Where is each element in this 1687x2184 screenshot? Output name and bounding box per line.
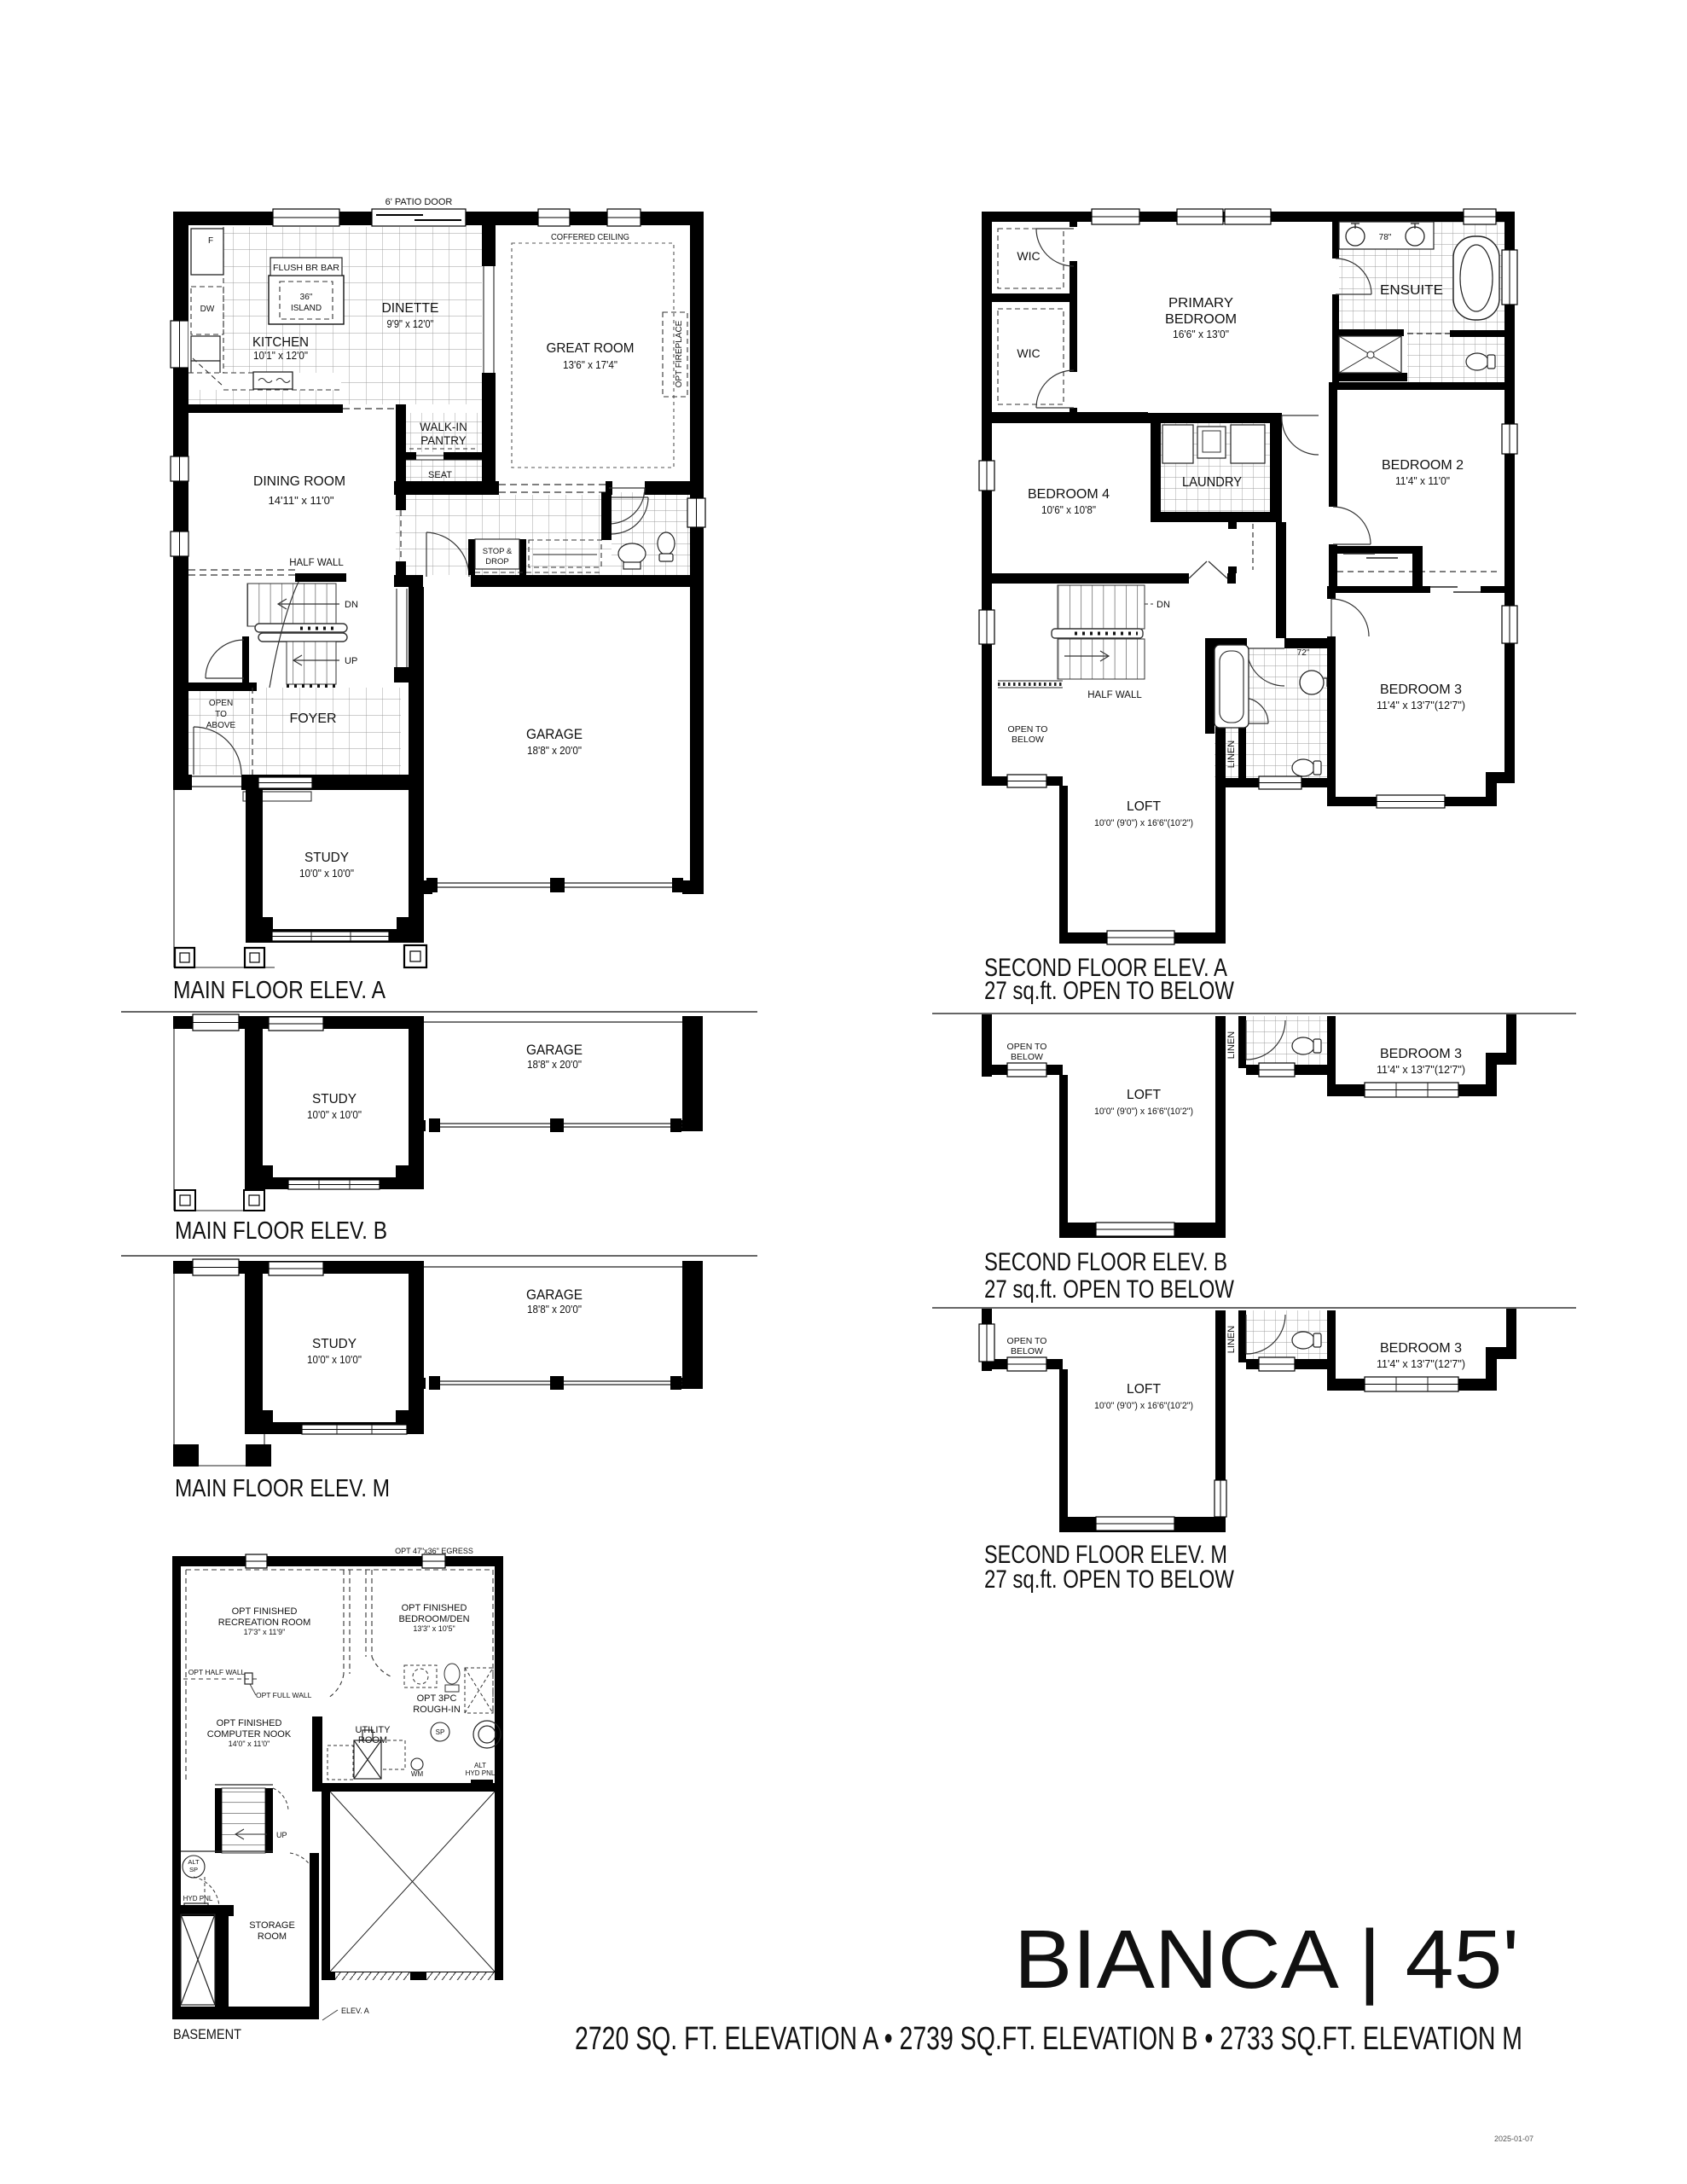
svg-text:PRIMARY: PRIMARY xyxy=(1168,296,1233,311)
svg-text:ABOVE: ABOVE xyxy=(206,721,236,730)
svg-text:DN: DN xyxy=(1157,600,1170,610)
svg-text:DINETTE: DINETTE xyxy=(382,301,439,316)
svg-text:OPT FULL WALL: OPT FULL WALL xyxy=(256,1691,312,1699)
svg-text:ISLAND: ISLAND xyxy=(291,304,322,313)
svg-text:PANTRY: PANTRY xyxy=(420,434,467,447)
svg-text:11'4" x 13'7"(12'7"): 11'4" x 13'7"(12'7") xyxy=(1377,1358,1465,1370)
svg-text:BELOW: BELOW xyxy=(1011,1052,1043,1062)
svg-text:10'0" x 10'0": 10'0" x 10'0" xyxy=(299,868,354,880)
svg-text:OPT HALF WALL: OPT HALF WALL xyxy=(188,1668,246,1676)
svg-text:13'6" x 17'4": 13'6" x 17'4" xyxy=(563,359,617,371)
svg-text:LOFT: LOFT xyxy=(1127,799,1161,814)
svg-text:36": 36" xyxy=(300,293,313,302)
svg-text:HALF WALL: HALF WALL xyxy=(289,558,344,568)
svg-text:COFFERED CEILING: COFFERED CEILING xyxy=(551,232,629,242)
svg-text:16'6" x 13'0": 16'6" x 13'0" xyxy=(1173,328,1229,340)
svg-text:STOP &: STOP & xyxy=(483,547,513,556)
svg-text:LOFT: LOFT xyxy=(1127,1382,1161,1397)
svg-text:WIC: WIC xyxy=(1017,249,1040,263)
svg-text:27 sq.ft. OPEN TO BELOW: 27 sq.ft. OPEN TO BELOW xyxy=(984,1565,1235,1594)
svg-text:HYD PNL: HYD PNL xyxy=(466,1769,496,1777)
svg-text:GREAT ROOM: GREAT ROOM xyxy=(547,341,635,356)
svg-text:LAUNDRY: LAUNDRY xyxy=(1182,475,1242,490)
svg-text:DINING ROOM: DINING ROOM xyxy=(253,474,345,489)
svg-text:SP: SP xyxy=(436,1728,445,1736)
svg-text:72": 72" xyxy=(1297,648,1310,658)
svg-text:OPEN TO: OPEN TO xyxy=(1007,1042,1047,1052)
svg-text:BEDROOM 3: BEDROOM 3 xyxy=(1380,1047,1462,1061)
svg-text:STUDY: STUDY xyxy=(312,1337,357,1351)
svg-text:OPT FINISHED: OPT FINISHED xyxy=(217,1718,282,1728)
svg-text:27 sq.ft. OPEN TO BELOW: 27 sq.ft. OPEN TO BELOW xyxy=(984,1275,1235,1304)
svg-text:LINEN: LINEN xyxy=(1226,1031,1237,1059)
svg-text:GARAGE: GARAGE xyxy=(526,1287,583,1303)
svg-text:10'0" (9'0") x 16'6"(10'2"): 10'0" (9'0") x 16'6"(10'2") xyxy=(1094,818,1193,828)
svg-text:11'4" x 13'7"(12'7"): 11'4" x 13'7"(12'7") xyxy=(1377,1064,1465,1076)
svg-text:BASEMENT: BASEMENT xyxy=(173,2026,241,2042)
svg-text:BEDROOM 4: BEDROOM 4 xyxy=(1028,487,1110,502)
svg-text:RECREATION ROOM: RECREATION ROOM xyxy=(218,1618,311,1628)
svg-text:18'8" x 20'0": 18'8" x 20'0" xyxy=(527,745,582,757)
svg-text:14'11" x 11'0": 14'11" x 11'0" xyxy=(269,495,334,507)
svg-text:BEDROOM 3: BEDROOM 3 xyxy=(1380,682,1462,697)
svg-text:ENSUITE: ENSUITE xyxy=(1380,283,1443,298)
svg-text:WALK-IN: WALK-IN xyxy=(420,421,467,433)
svg-text:ROUGH-IN: ROUGH-IN xyxy=(413,1705,461,1715)
svg-text:ELEV. A: ELEV. A xyxy=(341,2007,369,2015)
svg-text:11'4" x 11'0": 11'4" x 11'0" xyxy=(1395,475,1450,487)
svg-text:2720 SQ. FT. ELEVATION A • 273: 2720 SQ. FT. ELEVATION A • 2739 SQ.FT. E… xyxy=(575,2021,1522,2057)
svg-text:DW: DW xyxy=(200,305,215,314)
svg-text:6' PATIO DOOR: 6' PATIO DOOR xyxy=(386,197,453,207)
svg-text:SEAT: SEAT xyxy=(428,470,452,480)
svg-text:OPT FINISHED: OPT FINISHED xyxy=(232,1606,298,1617)
svg-text:18'8" x 20'0": 18'8" x 20'0" xyxy=(527,1304,582,1316)
svg-text:SP: SP xyxy=(189,1866,198,1873)
svg-text:STUDY: STUDY xyxy=(304,851,349,865)
svg-text:KITCHEN: KITCHEN xyxy=(252,335,309,350)
svg-text:MAIN FLOOR ELEV. B: MAIN FLOOR ELEV. B xyxy=(175,1217,387,1245)
svg-text:ALT: ALT xyxy=(474,1762,486,1769)
svg-text:FOYER: FOYER xyxy=(290,712,337,726)
svg-text:HYD PNL: HYD PNL xyxy=(183,1895,213,1902)
svg-text:10'0" x 10'0": 10'0" x 10'0" xyxy=(307,1109,362,1121)
svg-text:TO: TO xyxy=(215,710,227,719)
svg-text:11'4" x 13'7"(12'7"): 11'4" x 13'7"(12'7") xyxy=(1377,700,1465,712)
svg-text:UP: UP xyxy=(276,1831,287,1839)
svg-text:10'6" x 10'8": 10'6" x 10'8" xyxy=(1041,504,1096,516)
svg-text:LOFT: LOFT xyxy=(1127,1088,1161,1102)
svg-text:ROOM: ROOM xyxy=(258,1931,287,1942)
svg-text:STUDY: STUDY xyxy=(312,1092,357,1107)
svg-text:DROP: DROP xyxy=(485,557,508,566)
svg-text:13'3" x 10'5": 13'3" x 10'5" xyxy=(413,1624,455,1633)
svg-text:LINEN: LINEN xyxy=(1226,741,1237,768)
svg-text:10'0" x 10'0": 10'0" x 10'0" xyxy=(307,1354,362,1366)
svg-text:BELOW: BELOW xyxy=(1012,735,1044,745)
svg-text:GARAGE: GARAGE xyxy=(526,726,583,742)
svg-text:9'9" x 12'0": 9'9" x 12'0" xyxy=(387,318,434,330)
svg-text:MAIN FLOOR ELEV. A: MAIN FLOOR ELEV. A xyxy=(173,977,386,1004)
svg-text:10'0" (9'0") x 16'6"(10'2"): 10'0" (9'0") x 16'6"(10'2") xyxy=(1094,1107,1193,1117)
svg-text:FLUSH BR BAR: FLUSH BR BAR xyxy=(273,263,339,273)
svg-text:17'3" x 11'9": 17'3" x 11'9" xyxy=(244,1628,286,1636)
svg-text:BEDROOM 2: BEDROOM 2 xyxy=(1382,458,1464,473)
svg-text:GARAGE: GARAGE xyxy=(526,1042,583,1058)
svg-text:OPT FINISHED: OPT FINISHED xyxy=(402,1603,467,1613)
svg-text:F: F xyxy=(208,236,213,246)
svg-text:10'0" (9'0") x 16'6"(10'2"): 10'0" (9'0") x 16'6"(10'2") xyxy=(1094,1401,1193,1411)
svg-text:27 sq.ft. OPEN TO BELOW: 27 sq.ft. OPEN TO BELOW xyxy=(984,977,1235,1005)
svg-text:BELOW: BELOW xyxy=(1011,1346,1043,1356)
svg-text:18'8" x 20'0": 18'8" x 20'0" xyxy=(527,1059,582,1071)
svg-text:OPEN: OPEN xyxy=(209,699,233,708)
svg-text:OPEN TO: OPEN TO xyxy=(1007,1336,1047,1346)
svg-text:COMPUTER NOOK: COMPUTER NOOK xyxy=(207,1729,292,1740)
svg-text:STORAGE: STORAGE xyxy=(249,1920,295,1931)
svg-text:UP: UP xyxy=(345,656,357,666)
svg-text:SECOND FLOOR ELEV. B: SECOND FLOOR ELEV. B xyxy=(984,1248,1227,1276)
svg-text:MAIN FLOOR ELEV. M: MAIN FLOOR ELEV. M xyxy=(175,1475,390,1502)
svg-text:BEDROOM/DEN: BEDROOM/DEN xyxy=(398,1614,469,1624)
svg-text:HALF WALL: HALF WALL xyxy=(1087,690,1142,700)
svg-text:OPEN TO: OPEN TO xyxy=(1008,724,1048,735)
svg-text:10'1" x 12'0": 10'1" x 12'0" xyxy=(253,350,308,362)
svg-text:OPT 3PC: OPT 3PC xyxy=(417,1693,457,1704)
svg-text:BEDROOM: BEDROOM xyxy=(1165,312,1237,327)
svg-text:BIANCA | 45': BIANCA | 45' xyxy=(1014,1913,1519,2006)
svg-text:DN: DN xyxy=(345,600,358,610)
svg-text:LINEN: LINEN xyxy=(1226,1326,1237,1353)
svg-text:OPT FIREPLACE: OPT FIREPLACE xyxy=(675,320,684,387)
svg-text:BEDROOM 3: BEDROOM 3 xyxy=(1380,1341,1462,1356)
svg-text:ALT: ALT xyxy=(188,1858,200,1866)
svg-text:14'0" x 11'0": 14'0" x 11'0" xyxy=(229,1740,270,1748)
svg-text:78": 78" xyxy=(1379,233,1392,242)
svg-text:2025-01-07: 2025-01-07 xyxy=(1494,2135,1533,2143)
svg-text:WM: WM xyxy=(411,1770,424,1778)
svg-text:WIC: WIC xyxy=(1017,346,1040,360)
